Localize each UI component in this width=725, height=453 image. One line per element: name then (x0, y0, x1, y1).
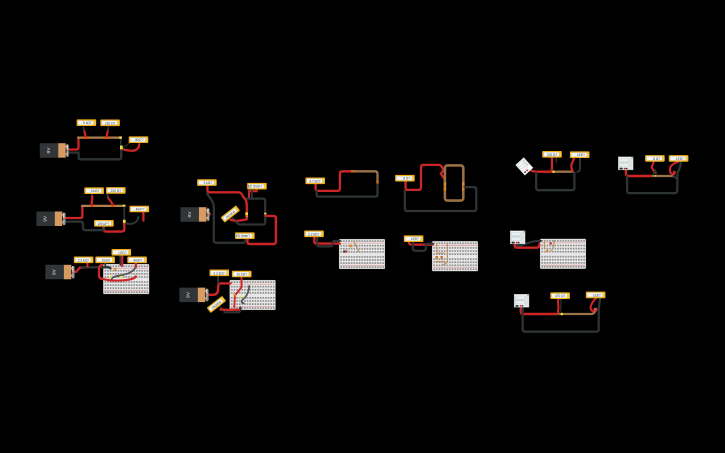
svg-text:2.2 kΩ?: 2.2 kΩ? (213, 271, 224, 275)
svg-text:4.7 kΩ?: 4.7 kΩ? (309, 179, 320, 183)
svg-text:220 Ω?: 220 Ω? (111, 189, 122, 193)
svg-text:LED 5mm?: LED 5mm? (234, 234, 250, 238)
svg-text:2.2 kΩ?: 2.2 kΩ? (308, 232, 319, 236)
svg-text:LED 5mm?: LED 5mm? (246, 185, 262, 189)
svg-text:4047?: 4047? (135, 138, 144, 142)
svg-text:100 µF?: 100 µF? (97, 222, 109, 226)
svg-text:8 Ω?: 8 Ω? (653, 157, 660, 161)
svg-text:5 kΩ?: 5 kΩ? (83, 121, 92, 125)
svg-text:10 kΩ?: 10 kΩ? (237, 273, 247, 277)
svg-text:8 Ω?: 8 Ω? (403, 177, 410, 181)
svg-text:5 kΩ?: 5 kΩ? (91, 189, 100, 193)
svg-text:5 kΩ?: 5 kΩ? (204, 181, 213, 185)
svg-text:2.2 kΩ?: 2.2 kΩ? (78, 258, 89, 262)
svg-text:470 Ω?: 470 Ω? (555, 294, 566, 298)
svg-text:220 Ω?: 220 Ω? (547, 153, 558, 157)
svg-text:5 kΩ?: 5 kΩ? (102, 258, 111, 262)
svg-text:LED?: LED? (119, 251, 127, 255)
svg-text:LED?: LED? (593, 293, 601, 297)
svg-text:4047?: 4047? (136, 208, 145, 212)
svg-text:4047?: 4047? (133, 258, 142, 262)
svg-text:LED?: LED? (676, 157, 684, 161)
svg-text:LED?: LED? (577, 153, 585, 157)
svg-text:220 Ω?: 220 Ω? (105, 121, 116, 125)
svg-text:LED?: LED? (411, 237, 419, 241)
